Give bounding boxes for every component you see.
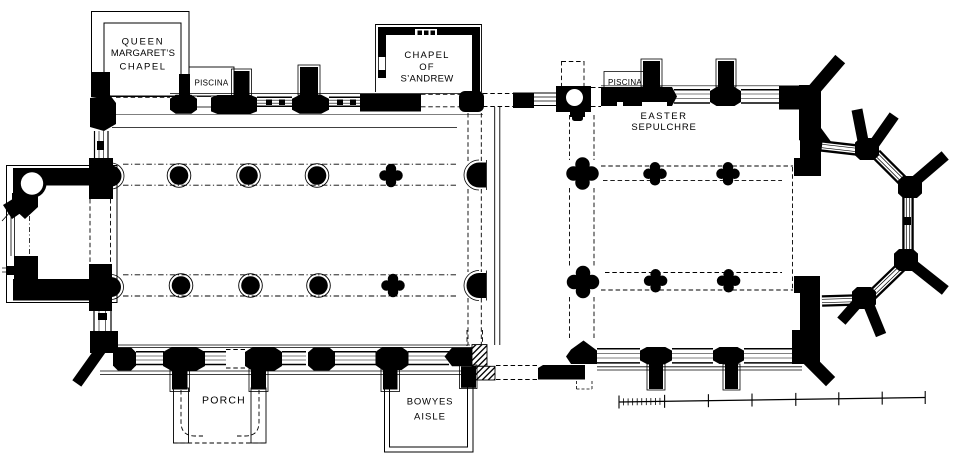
- svg-text:S’ANDREW: S’ANDREW: [400, 74, 453, 85]
- svg-text:AISLE: AISLE: [414, 412, 446, 423]
- svg-text:OF: OF: [419, 62, 435, 73]
- svg-text:BOWYES: BOWYES: [407, 397, 454, 408]
- svg-text:PISCINA: PISCINA: [194, 79, 228, 88]
- svg-text:CHAPEL: CHAPEL: [404, 50, 449, 61]
- svg-text:PISCINA: PISCINA: [608, 78, 642, 87]
- svg-text:QUEEN: QUEEN: [122, 37, 165, 48]
- svg-text:MARGARET’S: MARGARET’S: [111, 48, 175, 59]
- svg-text:CHAPEL: CHAPEL: [119, 62, 166, 73]
- svg-text:PORCH: PORCH: [202, 395, 246, 407]
- svg-text:SEPULCHRE: SEPULCHRE: [631, 122, 696, 133]
- svg-text:EASTER: EASTER: [640, 111, 687, 122]
